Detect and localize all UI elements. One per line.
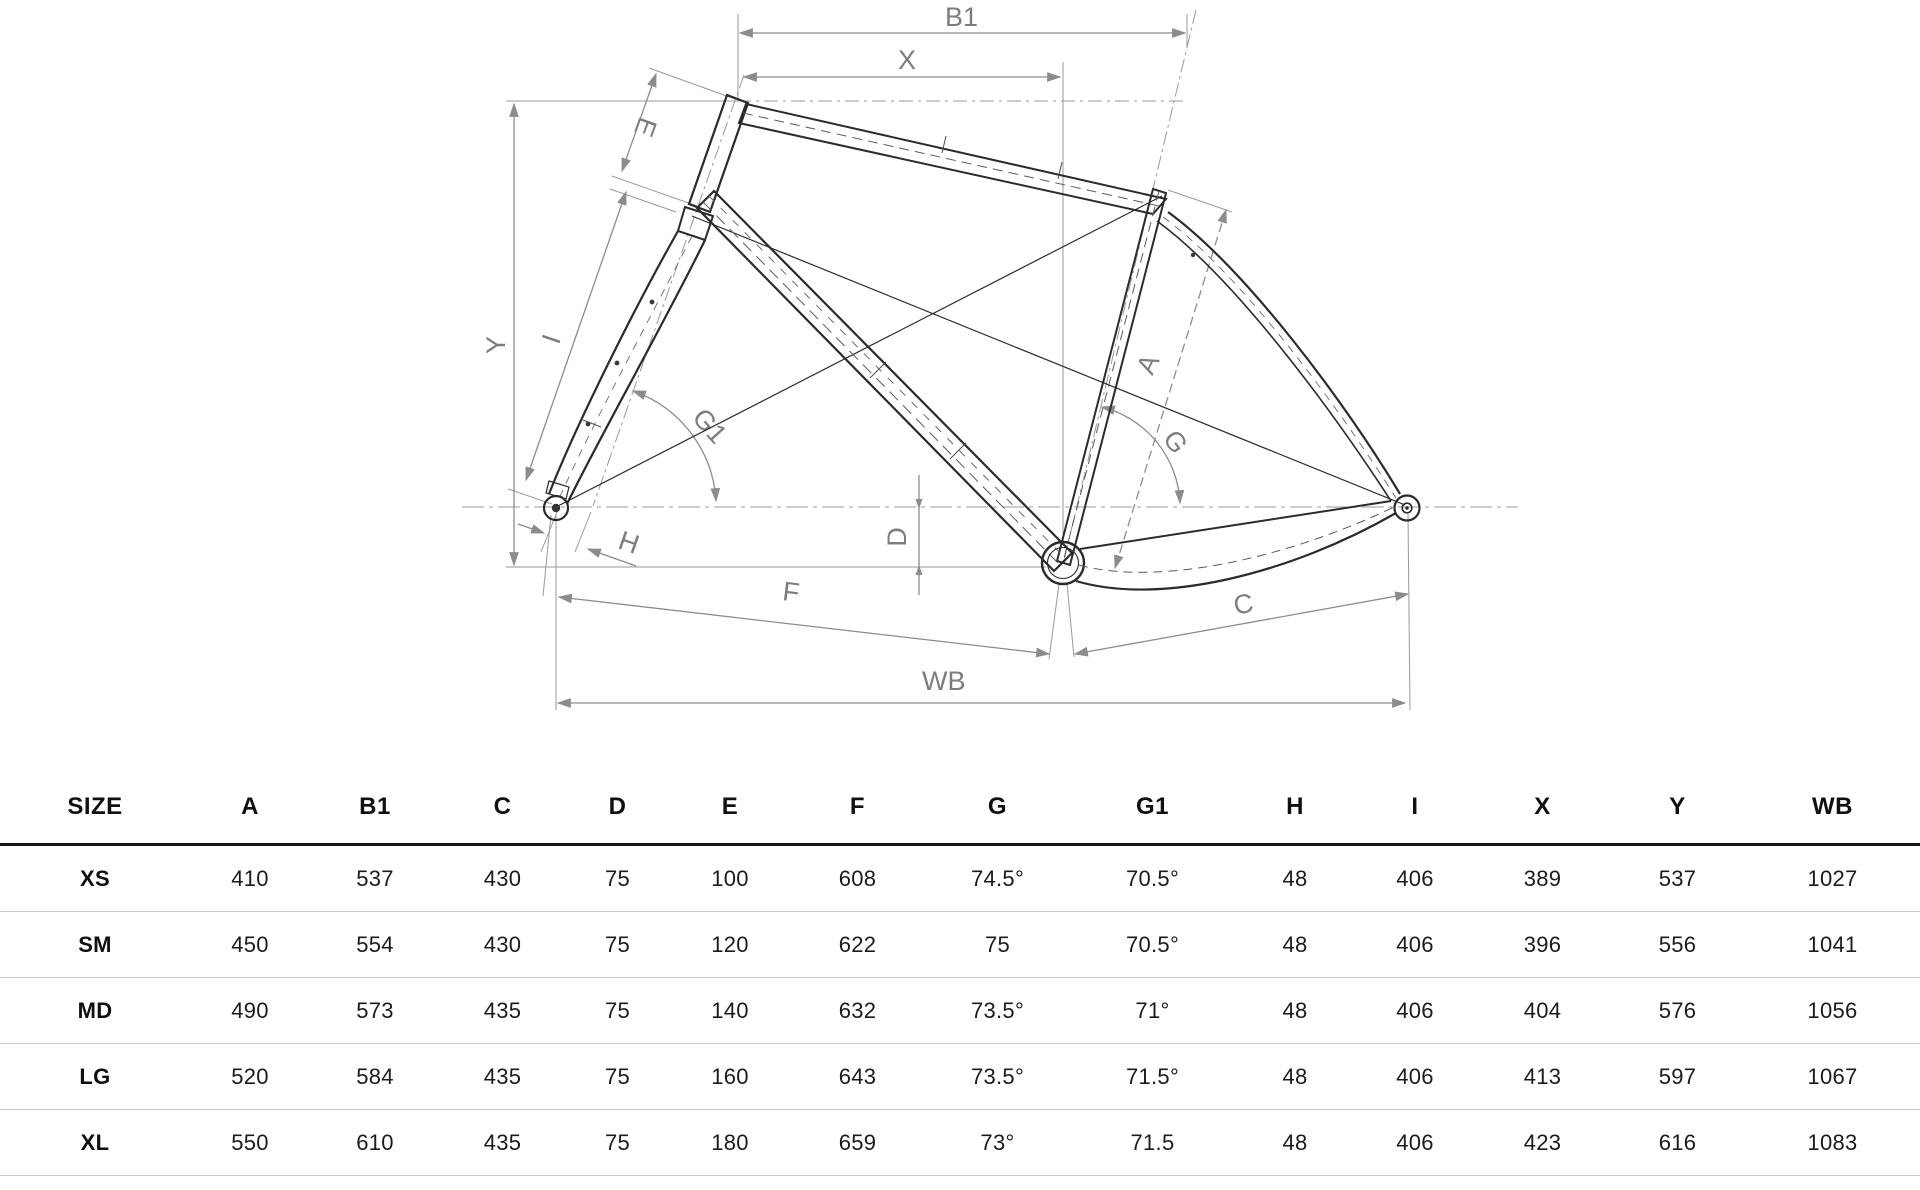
geometry-value: 450 [190, 912, 310, 978]
geometry-value: 160 [670, 1044, 790, 1110]
dim-label-b1: B1 [945, 2, 978, 32]
geometry-value: 73° [925, 1110, 1070, 1176]
geometry-value: 48 [1235, 1044, 1355, 1110]
geometry-value: 410 [190, 845, 310, 912]
geometry-value: 537 [310, 845, 440, 912]
geometry-value: 1056 [1745, 978, 1920, 1044]
chainstay-upper [1080, 501, 1391, 549]
seat-tube [1057, 189, 1166, 565]
geometry-value: 70.5° [1070, 912, 1235, 978]
geometry-value: 406 [1355, 912, 1475, 978]
geometry-value: 180 [670, 1110, 790, 1176]
geometry-table-body: XS4105374307510060874.5°70.5°48406389537… [0, 845, 1920, 1176]
column-header-d: D [565, 770, 670, 845]
geometry-value: 73.5° [925, 1044, 1070, 1110]
geometry-value: 1041 [1745, 912, 1920, 978]
geometry-value: 73.5° [925, 978, 1070, 1044]
geometry-value: 71.5 [1070, 1110, 1235, 1176]
column-header-x: X [1475, 770, 1610, 845]
frame-geometry-diagram: B1 X Y E I G1 H D F WB A G C [0, 0, 1920, 760]
geometry-value: 75 [565, 912, 670, 978]
dim-line-a [1115, 210, 1226, 568]
size-row-lg: LG5205844357516064373.5°71.5°48406413597… [0, 1044, 1920, 1110]
dimension-labels: B1 X Y E I G1 H D F WB A G C [481, 2, 1256, 696]
geometry-value: 554 [310, 912, 440, 978]
column-header-y: Y [1610, 770, 1745, 845]
geometry-value: 406 [1355, 978, 1475, 1044]
dim-label-i: I [536, 331, 567, 348]
geometry-value: 520 [190, 1044, 310, 1110]
geometry-value: 71° [1070, 978, 1235, 1044]
size-label: MD [0, 978, 190, 1044]
column-header-e: E [670, 770, 790, 845]
geometry-value: 435 [440, 1110, 565, 1176]
dim-label-g: G [1157, 425, 1194, 459]
size-row-xs: XS4105374307510060874.5°70.5°48406389537… [0, 845, 1920, 912]
geometry-value: 1027 [1745, 845, 1920, 912]
column-header-g1: G1 [1070, 770, 1235, 845]
dim-line-h-left [518, 524, 544, 533]
geometry-drawing-svg: B1 X Y E I G1 H D F WB A G C [0, 0, 1920, 760]
geometry-table-head-row: SIZEAB1CDEFGG1HIXYWB [0, 770, 1920, 845]
geometry-value: 576 [1610, 978, 1745, 1044]
geometry-value: 435 [440, 1044, 565, 1110]
geometry-value: 643 [790, 1044, 925, 1110]
geometry-value: 70.5° [1070, 845, 1235, 912]
geometry-value: 632 [790, 978, 925, 1044]
fork-blade-rear [567, 240, 705, 504]
geometry-value: 48 [1235, 845, 1355, 912]
size-label: XS [0, 845, 190, 912]
column-header-wb: WB [1745, 770, 1920, 845]
geometry-value: 423 [1475, 1110, 1610, 1176]
dim-line-f [559, 597, 1049, 654]
dim-label-g1: G1 [686, 403, 732, 450]
geometry-value: 622 [790, 912, 925, 978]
size-label: LG [0, 1044, 190, 1110]
dim-label-a: A [1130, 350, 1165, 379]
geometry-value: 75 [565, 845, 670, 912]
dim-label-f: F [781, 576, 801, 608]
geometry-value: 435 [440, 978, 565, 1044]
geometry-value: 140 [670, 978, 790, 1044]
geometry-value: 430 [440, 845, 565, 912]
geometry-value: 396 [1475, 912, 1610, 978]
geometry-value: 48 [1235, 1110, 1355, 1176]
geometry-value: 597 [1610, 1044, 1745, 1110]
geometry-value: 616 [1610, 1110, 1745, 1176]
geometry-value: 75 [565, 1110, 670, 1176]
geometry-value: 120 [670, 912, 790, 978]
geometry-value: 537 [1610, 845, 1745, 912]
geometry-value: 75 [925, 912, 1070, 978]
page: B1 X Y E I G1 H D F WB A G C [0, 0, 1920, 1190]
geometry-value: 430 [440, 912, 565, 978]
size-row-sm: SM450554430751206227570.5°48406396556104… [0, 912, 1920, 978]
column-header-b1: B1 [310, 770, 440, 845]
geometry-value: 1067 [1745, 1044, 1920, 1110]
geometry-value: 74.5° [925, 845, 1070, 912]
geometry-value: 48 [1235, 912, 1355, 978]
down-tube [697, 191, 1072, 571]
geometry-value: 389 [1475, 845, 1610, 912]
geometry-value: 75 [565, 978, 670, 1044]
geometry-value: 573 [310, 978, 440, 1044]
column-header-h: H [1235, 770, 1355, 845]
dim-label-wb: WB [922, 666, 966, 696]
column-header-g: G [925, 770, 1070, 845]
size-label: SM [0, 912, 190, 978]
top-tube [739, 104, 1166, 214]
geometry-value: 71.5° [1070, 1044, 1235, 1110]
column-header-c: C [440, 770, 565, 845]
geometry-table: SIZEAB1CDEFGG1HIXYWB XS41053743075100608… [0, 770, 1920, 1176]
geometry-value: 100 [670, 845, 790, 912]
geometry-value: 406 [1355, 1110, 1475, 1176]
dim-label-d: D [882, 527, 912, 547]
geometry-value: 48 [1235, 978, 1355, 1044]
size-row-xl: XL5506104357518065973°71.548406423616108… [0, 1110, 1920, 1176]
geometry-value: 404 [1475, 978, 1610, 1044]
geometry-value: 550 [190, 1110, 310, 1176]
geometry-value: 413 [1475, 1044, 1610, 1110]
dim-label-h: H [615, 525, 643, 560]
geometry-value: 75 [565, 1044, 670, 1110]
geometry-value: 659 [790, 1110, 925, 1176]
dim-label-c: C [1231, 588, 1255, 621]
geometry-value: 584 [310, 1044, 440, 1110]
size-label: XL [0, 1110, 190, 1176]
geometry-value: 608 [790, 845, 925, 912]
column-header-size: SIZE [0, 770, 190, 845]
column-header-f: F [790, 770, 925, 845]
geometry-value: 406 [1355, 845, 1475, 912]
extension-lines [462, 10, 1518, 710]
size-row-md: MD4905734357514063273.5°71°4840640457610… [0, 978, 1920, 1044]
geometry-value: 490 [190, 978, 310, 1044]
column-header-i: I [1355, 770, 1475, 845]
geometry-value: 406 [1355, 1044, 1475, 1110]
dim-label-y: Y [481, 336, 511, 354]
seat-stay-back [1157, 221, 1391, 501]
geometry-value: 610 [310, 1110, 440, 1176]
bike-frame [544, 95, 1420, 590]
geometry-value: 1083 [1745, 1110, 1920, 1176]
dim-label-x: X [898, 45, 916, 75]
column-header-a: A [190, 770, 310, 845]
geometry-value: 556 [1610, 912, 1745, 978]
